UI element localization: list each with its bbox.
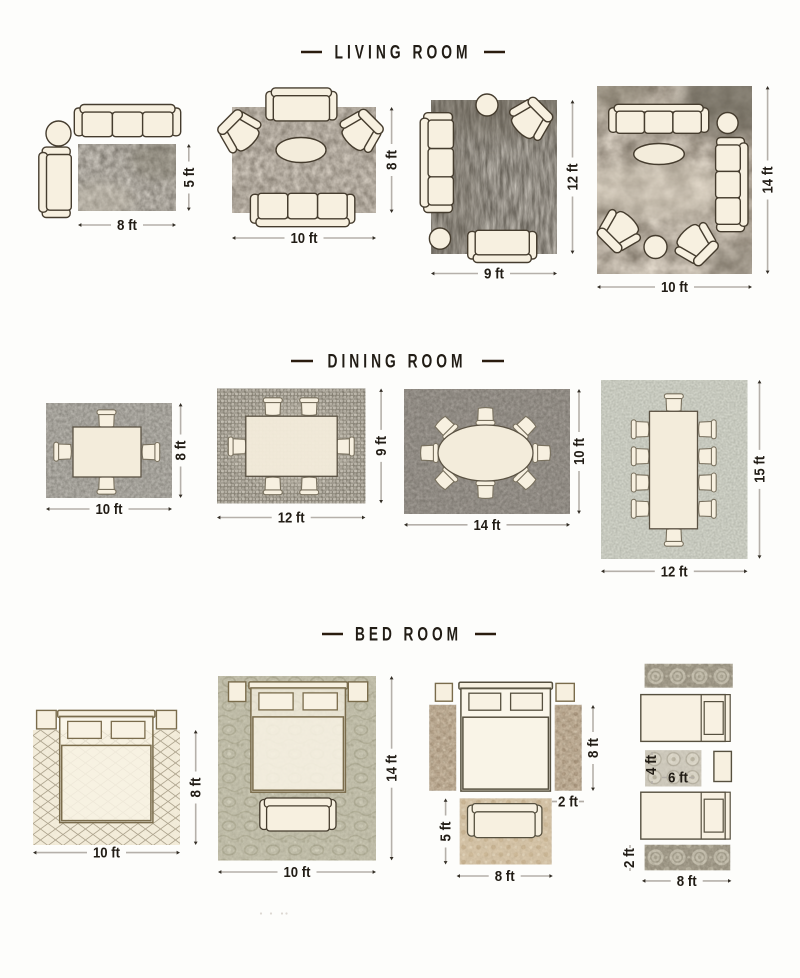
svg-text:12 ft: 12 ft — [278, 511, 305, 527]
svg-text:9 ft: 9 ft — [484, 267, 504, 283]
svg-text:8 ft: 8 ft — [173, 440, 190, 460]
svg-text:2 ft: 2 ft — [558, 795, 578, 811]
svg-text:15 ft: 15 ft — [752, 456, 769, 483]
svg-text:12 ft: 12 ft — [565, 163, 582, 190]
svg-text:10 ft: 10 ft — [571, 438, 588, 465]
svg-text:8 ft: 8 ft — [384, 150, 401, 170]
svg-text:8 ft: 8 ft — [117, 218, 137, 234]
svg-text:LIVING ROOM: LIVING ROOM — [335, 43, 472, 64]
svg-text:8 ft: 8 ft — [495, 869, 515, 885]
svg-text:5 ft: 5 ft — [181, 167, 198, 187]
svg-text:8 ft: 8 ft — [677, 874, 697, 890]
svg-text:10 ft: 10 ft — [291, 231, 318, 247]
svg-text:12 ft: 12 ft — [661, 564, 688, 580]
svg-text:10 ft: 10 ft — [96, 502, 123, 518]
svg-text:DINING ROOM: DINING ROOM — [328, 352, 467, 373]
svg-text:4 ft: 4 ft — [644, 755, 660, 775]
svg-text:14 ft: 14 ft — [760, 166, 777, 193]
svg-text:8 ft: 8 ft — [188, 777, 205, 797]
svg-text:9 ft: 9 ft — [373, 436, 390, 456]
svg-text:2 ft: 2 ft — [622, 848, 638, 868]
svg-text:10 ft: 10 ft — [661, 280, 688, 296]
svg-text:14 ft: 14 ft — [474, 518, 501, 534]
svg-text:BED ROOM: BED ROOM — [355, 625, 462, 646]
svg-text:10 ft: 10 ft — [93, 846, 120, 862]
svg-text:8 ft: 8 ft — [585, 738, 602, 758]
svg-text:5 ft: 5 ft — [438, 821, 455, 841]
svg-text:10 ft: 10 ft — [284, 865, 311, 881]
svg-text:6 ft: 6 ft — [668, 771, 688, 787]
svg-text:14 ft: 14 ft — [384, 755, 401, 782]
